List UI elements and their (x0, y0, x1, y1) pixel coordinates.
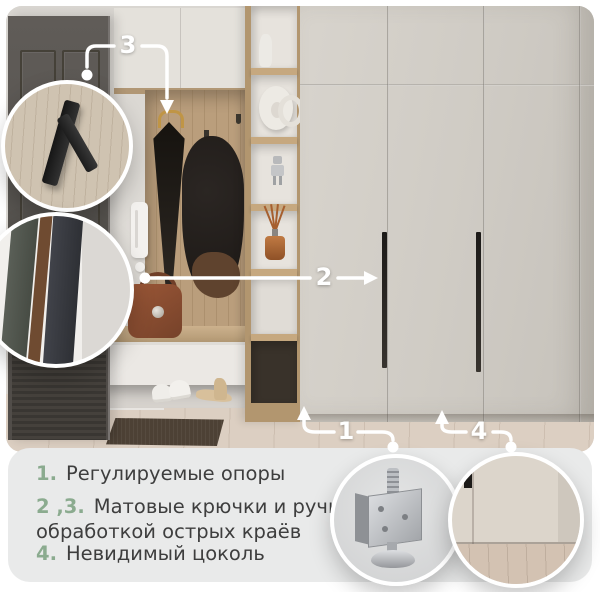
shelf (251, 68, 297, 75)
support-threaded-stem (387, 468, 399, 494)
bracket-hole (378, 506, 384, 512)
intercom (131, 202, 148, 258)
bag-medallion (152, 306, 164, 318)
support-foot (371, 550, 415, 568)
decor-bottle (259, 34, 272, 67)
doormat-texture (106, 418, 224, 446)
heel-shoe (214, 378, 227, 400)
floor-planks (452, 544, 580, 584)
door-seam (472, 456, 474, 544)
open-shelf-column (245, 6, 303, 422)
legend-text: Матовые крючки и ручки с обработкой остр… (36, 495, 369, 543)
shelf (251, 204, 297, 211)
intercom-speaker (135, 210, 138, 248)
callout-4-label: 4 (465, 417, 493, 445)
callout-1-label: 1 (332, 417, 360, 445)
legend-number: 4. (36, 542, 57, 565)
robot-figurine (279, 176, 282, 185)
inset-handle-closeup (0, 212, 134, 368)
wardrobe-handle (382, 232, 387, 368)
robot-figurine (271, 165, 284, 176)
legend-number: 2 ,3. (36, 495, 85, 518)
inset-plinth-closeup (448, 452, 584, 588)
shelf-niche-dark (251, 341, 297, 403)
product-annotation-card: 1.Регулируемые опоры 2 ,3.Матовые крючки… (0, 0, 600, 592)
floor (452, 544, 580, 584)
inset-support-closeup (330, 454, 462, 586)
legend-item: 4.Невидимый цоколь (36, 541, 265, 566)
robot-figurine (273, 156, 282, 164)
reed-diffuser (265, 236, 285, 260)
shelf-niche (251, 276, 297, 334)
shelf (251, 137, 297, 144)
doormat (106, 418, 224, 446)
shelf-niche (251, 6, 297, 68)
inset-hook-closeup (1, 80, 133, 212)
legend-text: Регулируемые опоры (66, 462, 285, 485)
bracket-hole (402, 514, 408, 520)
legend-number: 1. (36, 462, 57, 485)
wardrobe-seam (300, 84, 594, 86)
doorbell (135, 262, 145, 272)
callout-3-label: 3 (114, 31, 142, 59)
wardrobe-seam (483, 6, 485, 422)
bracket-hole (382, 526, 388, 532)
legend-text: Невидимый цоколь (66, 542, 265, 565)
wardrobe-seam (579, 6, 581, 422)
shelf (251, 269, 297, 276)
wardrobe-seam (387, 6, 389, 422)
wall (82, 216, 130, 364)
wardrobe (300, 6, 594, 422)
support-bracket (368, 488, 422, 548)
coat-hook (236, 114, 241, 124)
legend-item: 1.Регулируемые опоры (36, 461, 285, 486)
cabinet-seam (180, 8, 181, 88)
robot-figurine (273, 176, 276, 185)
handle-notch (464, 470, 472, 488)
callout-2-label: 2 (310, 263, 338, 291)
wardrobe-handle (476, 232, 481, 372)
shelf (251, 334, 297, 341)
wall (558, 456, 580, 542)
